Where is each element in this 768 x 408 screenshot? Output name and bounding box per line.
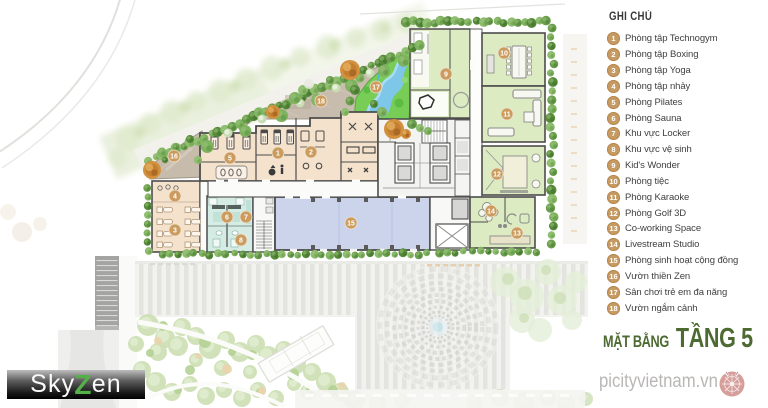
svg-text:17: 17 (372, 85, 380, 92)
svg-text:3: 3 (173, 228, 177, 235)
svg-text:5: 5 (228, 156, 232, 163)
svg-text:11: 11 (503, 112, 511, 119)
svg-text:14: 14 (487, 209, 495, 216)
svg-text:9: 9 (444, 72, 448, 79)
svg-text:8: 8 (239, 238, 243, 245)
svg-text:7: 7 (244, 215, 248, 222)
svg-text:1: 1 (276, 151, 280, 158)
svg-text:2: 2 (309, 150, 313, 157)
svg-text:18: 18 (317, 99, 325, 106)
svg-text:12: 12 (493, 172, 501, 179)
svg-text:16: 16 (170, 154, 178, 161)
svg-text:6: 6 (225, 215, 229, 222)
svg-text:15: 15 (347, 221, 355, 228)
svg-text:4: 4 (173, 194, 177, 201)
svg-text:13: 13 (513, 231, 521, 238)
svg-text:10: 10 (500, 51, 508, 58)
